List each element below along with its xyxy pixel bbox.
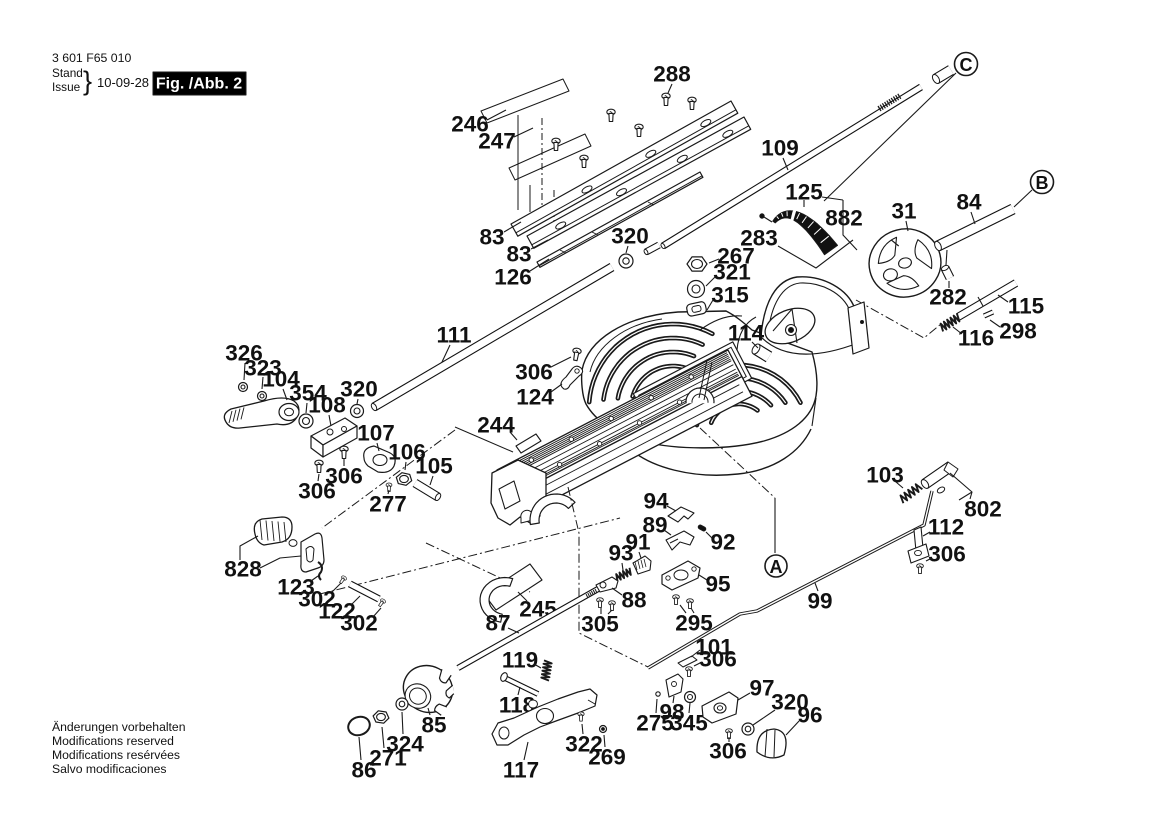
svg-text:95: 95 — [705, 572, 730, 597]
svg-text:Modifications resérvées: Modifications resérvées — [52, 748, 180, 762]
svg-text:288: 288 — [653, 62, 691, 87]
svg-text:84: 84 — [956, 190, 982, 215]
svg-text:92: 92 — [710, 530, 735, 555]
svg-text:99: 99 — [807, 589, 832, 614]
svg-text:Fig. /Abb. 2: Fig. /Abb. 2 — [156, 76, 242, 93]
svg-text:Modifications reserved: Modifications reserved — [52, 734, 174, 748]
svg-text:277: 277 — [369, 492, 407, 517]
svg-text:306: 306 — [928, 542, 966, 567]
svg-text:10-09-28: 10-09-28 — [97, 75, 149, 90]
svg-text:269: 269 — [588, 745, 626, 770]
svg-text:114: 114 — [728, 321, 765, 346]
svg-text:105: 105 — [415, 454, 453, 479]
svg-text:315: 315 — [711, 283, 749, 308]
svg-text:302: 302 — [340, 611, 378, 636]
svg-text:Änderungen vorbehalten: Änderungen vorbehalten — [52, 720, 186, 734]
svg-text:B: B — [1036, 173, 1049, 193]
svg-text:83: 83 — [479, 225, 504, 250]
svg-text:87: 87 — [485, 611, 510, 636]
svg-text:247: 247 — [478, 129, 516, 154]
svg-text:86: 86 — [351, 758, 376, 783]
svg-text:3 601 F65 010: 3 601 F65 010 — [52, 51, 131, 65]
svg-text:305: 305 — [581, 612, 619, 637]
svg-text:882: 882 — [825, 206, 863, 231]
svg-text:93: 93 — [608, 541, 633, 566]
svg-text:282: 282 — [929, 285, 967, 310]
svg-text:Salvo modificaciones: Salvo modificaciones — [52, 762, 166, 776]
svg-text:94: 94 — [643, 489, 669, 514]
svg-text:320: 320 — [340, 377, 378, 402]
svg-text:Issue: Issue — [52, 80, 81, 94]
svg-text:306: 306 — [699, 647, 737, 672]
svg-text:321: 321 — [713, 260, 751, 285]
svg-text:C: C — [960, 55, 973, 75]
svg-text:117: 117 — [503, 758, 539, 783]
svg-text:306: 306 — [298, 479, 336, 504]
svg-text:111: 111 — [436, 323, 471, 348]
svg-text:83: 83 — [506, 242, 531, 267]
svg-text:320: 320 — [611, 224, 649, 249]
svg-text:306: 306 — [515, 360, 553, 385]
svg-text:96: 96 — [797, 703, 822, 728]
svg-text:}: } — [83, 66, 92, 96]
svg-text:85: 85 — [421, 713, 446, 738]
svg-text:112: 112 — [928, 515, 964, 540]
svg-text:31: 31 — [891, 199, 916, 224]
svg-text:298: 298 — [999, 319, 1037, 344]
svg-text:109: 109 — [761, 136, 799, 161]
svg-text:A: A — [770, 557, 783, 577]
svg-text:116: 116 — [958, 326, 994, 351]
svg-text:124: 124 — [516, 385, 554, 410]
svg-text:802: 802 — [964, 497, 1002, 522]
svg-text:88: 88 — [621, 588, 646, 613]
svg-text:115: 115 — [1008, 294, 1044, 319]
svg-text:Stand: Stand — [52, 66, 83, 80]
svg-text:244: 244 — [477, 413, 515, 438]
svg-text:126: 126 — [494, 265, 532, 290]
svg-text:275: 275 — [636, 711, 674, 736]
svg-text:345: 345 — [670, 711, 708, 736]
svg-text:119: 119 — [502, 648, 538, 673]
svg-text:306: 306 — [709, 739, 747, 764]
svg-text:828: 828 — [224, 557, 262, 582]
